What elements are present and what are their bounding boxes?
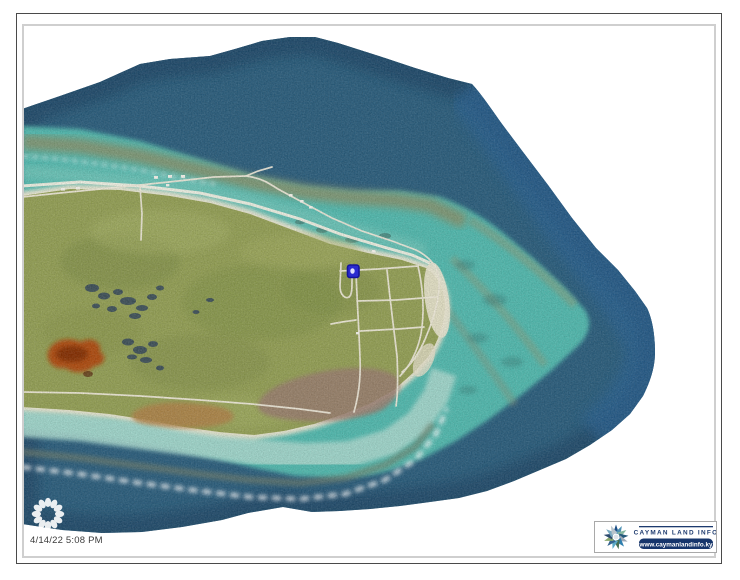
map-timestamp: 4/14/22 5:08 PM	[30, 535, 103, 546]
starburst-icon	[603, 524, 629, 549]
logo-url: www.caymanlandinfo.ky	[639, 541, 713, 548]
logo-rule	[639, 526, 713, 527]
selected-parcel-marker[interactable]	[348, 265, 360, 278]
logo-title: CAYMAN LAND INFO	[634, 530, 716, 537]
cayman-land-info-logo: CAYMAN LAND INFO www.caymanlandinfo.ky	[594, 521, 717, 553]
print-map-page: 4/14/22 5:08 PM CAYMAN LAND INFO	[0, 0, 740, 580]
grain-light-overlay	[0, 0, 740, 580]
aerial-map[interactable]	[0, 0, 740, 580]
loading-spinner-icon	[29, 495, 67, 533]
